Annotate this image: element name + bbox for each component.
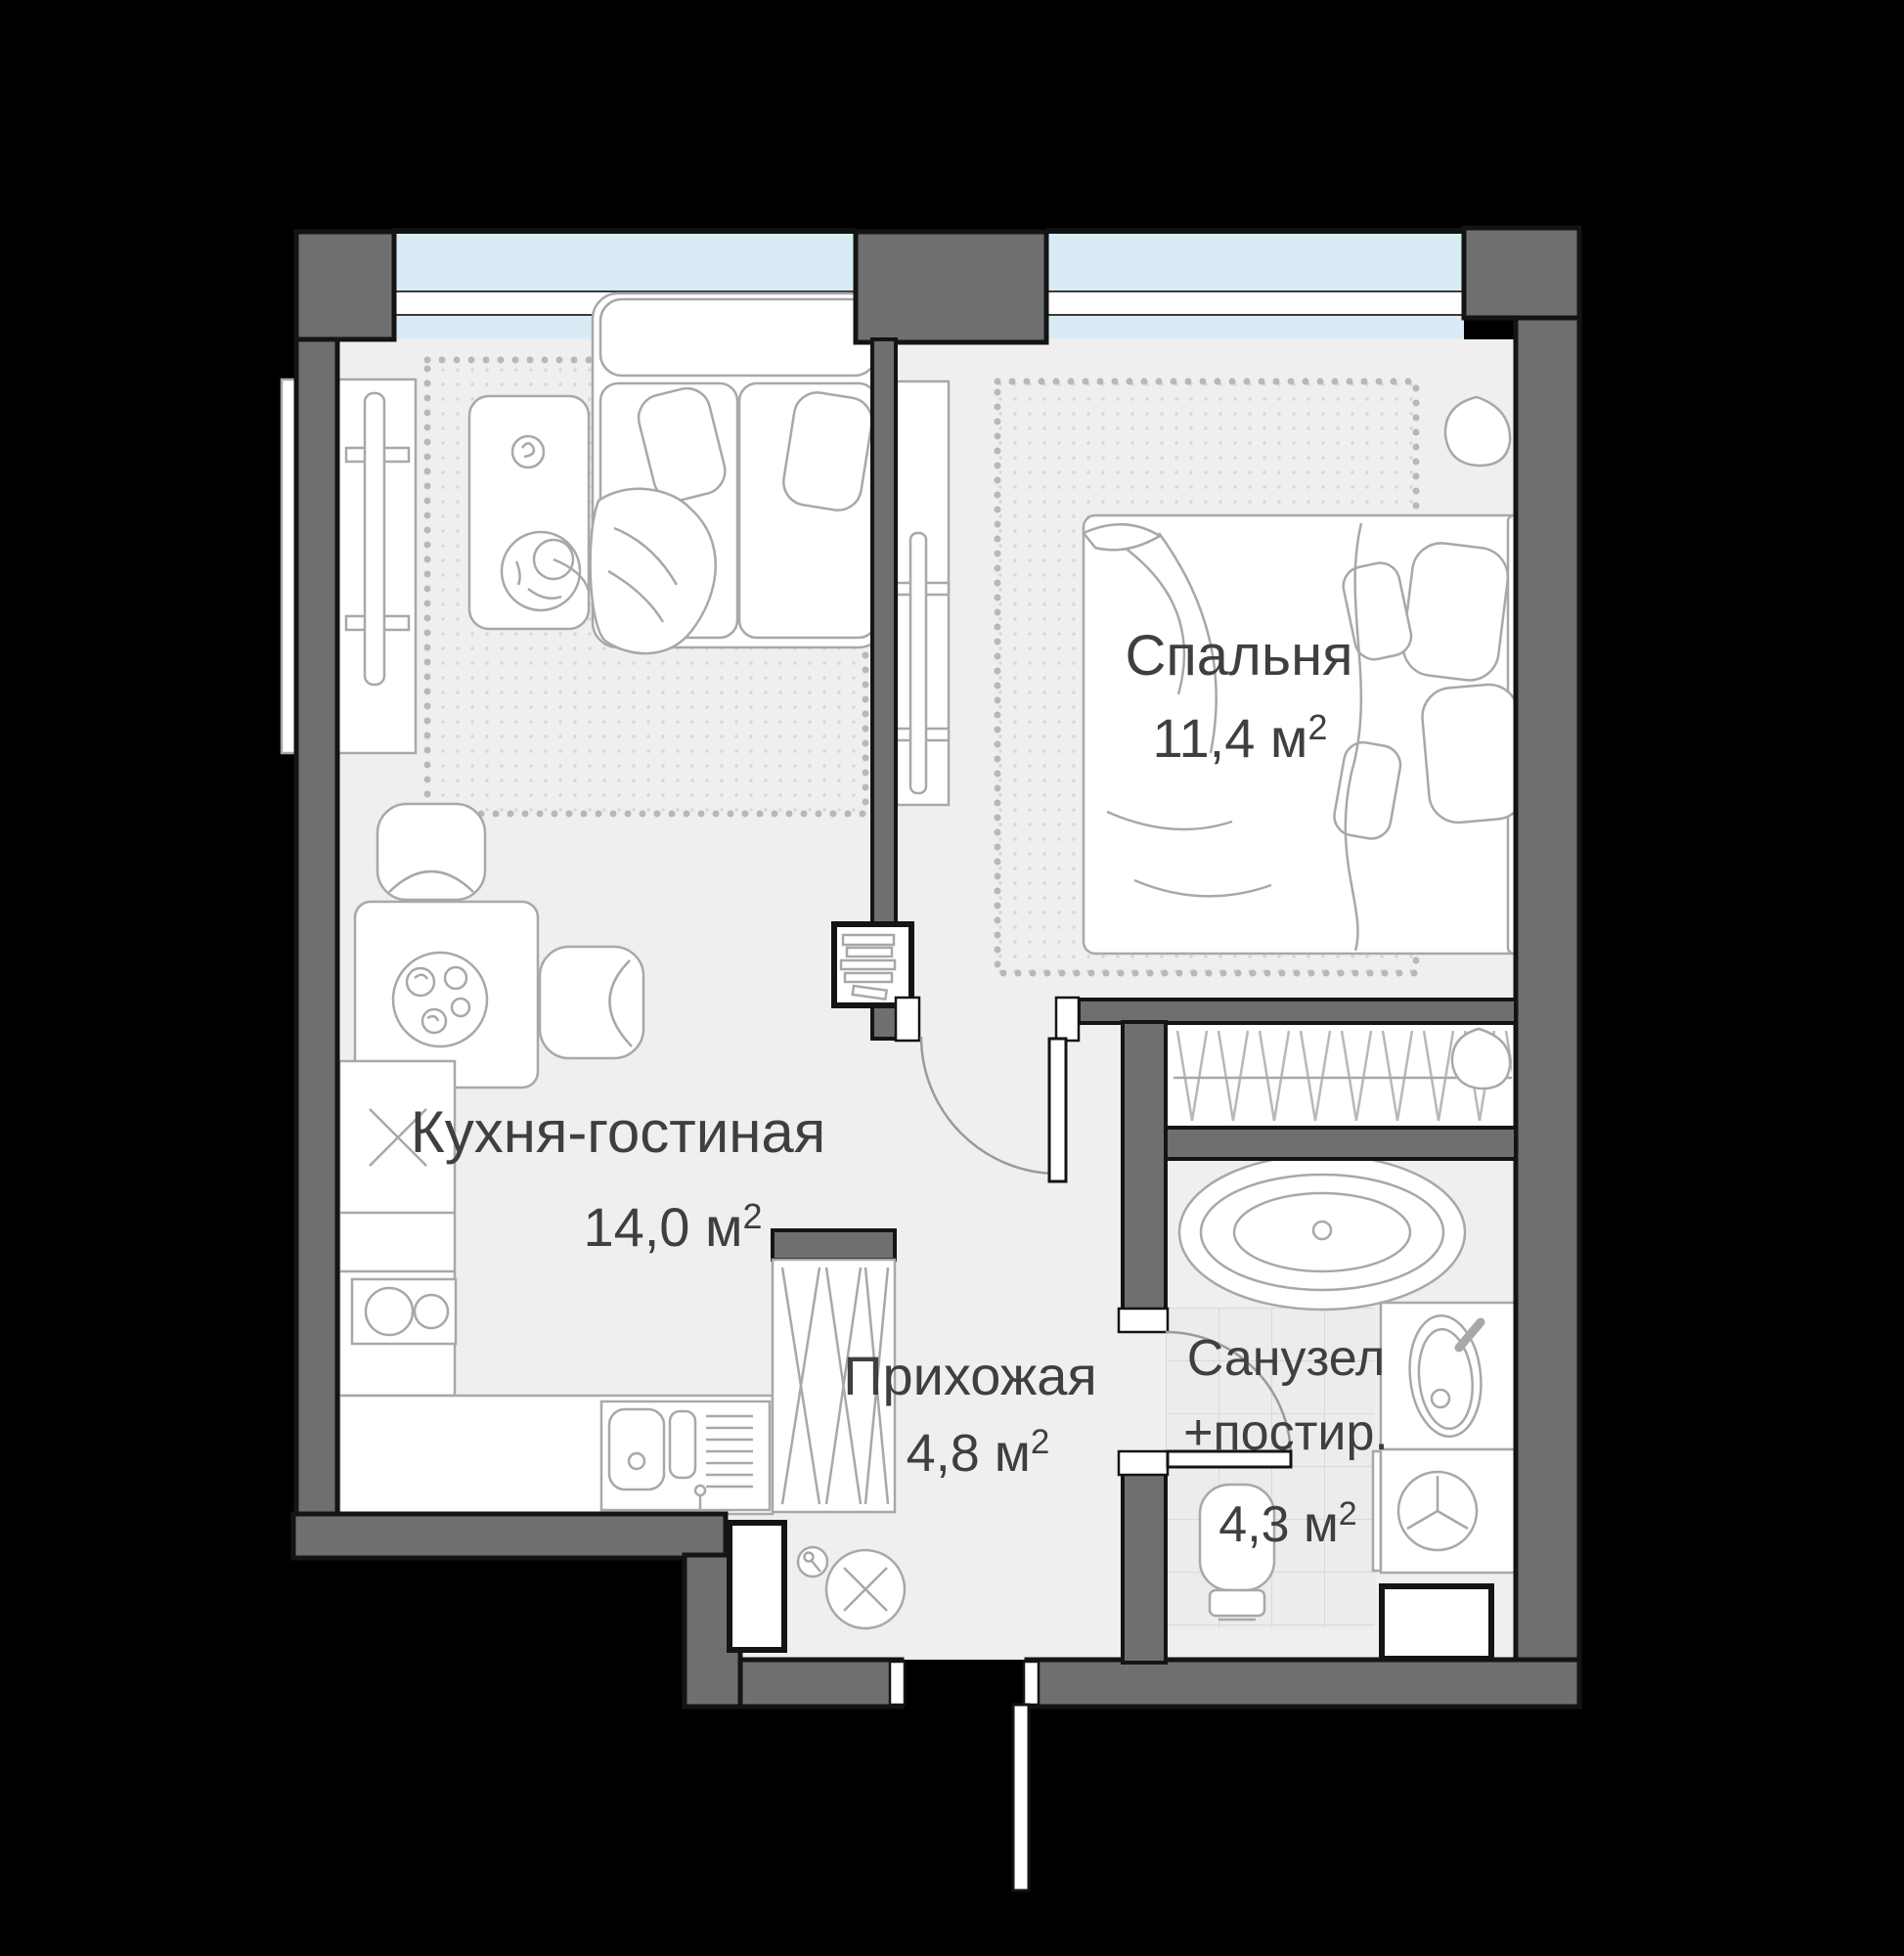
washing-machine	[1381, 1449, 1516, 1573]
hallway-area-sup: 2	[1031, 1423, 1049, 1461]
door-jamb	[1024, 1662, 1039, 1705]
wall-bedroom-bottom	[1079, 1000, 1516, 1023]
plate-food	[407, 968, 434, 996]
wall-right-exterior	[1516, 318, 1579, 1707]
hallway-label: Прихожая	[843, 1345, 1097, 1406]
sink-drainer	[706, 1416, 753, 1487]
closet	[1166, 1023, 1516, 1128]
facade-line	[1046, 228, 1464, 234]
bedroom-label: Спальня	[1125, 624, 1352, 688]
door-jamb	[896, 998, 919, 1041]
door-jamb	[1119, 1309, 1168, 1332]
wall-bathroom-left-lower	[1123, 1453, 1166, 1663]
wall-pillar-middle	[856, 232, 1046, 342]
door-jamb	[1119, 1451, 1168, 1475]
sofa	[591, 293, 884, 653]
wall-living-bedroom-divider	[872, 339, 896, 1002]
bedroom-area: 11,4 м2	[1153, 707, 1328, 769]
floor-hallway	[873, 1022, 1123, 1660]
wall-pillar-top-left	[296, 232, 394, 339]
bathroom-label: Санузел	[1187, 1330, 1386, 1387]
door-jamb	[1056, 998, 1079, 1041]
toilet-base	[1210, 1590, 1264, 1616]
wall-hallway-bottom	[740, 1660, 902, 1707]
bathroom-area-value: 4,3 м	[1218, 1496, 1338, 1553]
wall-closet-bottom	[1166, 1128, 1516, 1159]
sofa-pillow	[780, 389, 875, 513]
hallway-area: 4,8 м2	[907, 1423, 1050, 1483]
wall-bathroom-bottom	[1027, 1660, 1579, 1707]
wall-left-exterior	[296, 339, 337, 1558]
wall-bathroom-left-upper	[1123, 1022, 1166, 1330]
duct-niche	[730, 1523, 784, 1650]
hallway-area-value: 4,8 м	[907, 1424, 1031, 1483]
plate-food	[422, 1009, 446, 1033]
wardrobe-wall-stub	[773, 1230, 895, 1260]
bedroom-door-leaf	[1049, 1039, 1066, 1181]
book	[841, 960, 895, 969]
bookshelf	[834, 924, 911, 1005]
kitchen-living-area: 14,0 м2	[583, 1196, 762, 1258]
bedroom-tv-screen	[910, 533, 926, 793]
bathroom-area: 4,3 м2	[1218, 1495, 1356, 1553]
wall-kitchen-bottom	[293, 1514, 726, 1558]
bathroom-area-sup: 2	[1339, 1495, 1357, 1533]
bedroom-area-sup: 2	[1307, 707, 1327, 747]
floor-plan: Спальня 11,4 м2 Кухня-гостиная 14,0 м2 П…	[0, 0, 1904, 1956]
bathroom-label-line2: +постир.	[1183, 1404, 1389, 1461]
kitchen-living-label: Кухня-гостиная	[411, 1099, 825, 1165]
sink-bowl-small	[670, 1411, 695, 1478]
dining-chair	[377, 804, 485, 900]
coffee-table-decor	[512, 436, 544, 467]
hob	[352, 1279, 456, 1344]
book	[847, 948, 892, 956]
plate-food	[452, 999, 469, 1016]
kitchen-living-area-sup: 2	[743, 1196, 763, 1236]
wall-pillar-top-right	[1464, 228, 1579, 318]
bed-pillow	[1420, 682, 1528, 824]
bedroom-area-value: 11,4 м	[1153, 707, 1308, 769]
kitchen-living-area-value: 14,0 м	[583, 1196, 742, 1258]
bed-pillow	[1399, 540, 1511, 684]
bathtub	[1179, 1155, 1465, 1310]
bathroom-shaft	[1382, 1586, 1491, 1659]
sofa-back	[600, 299, 876, 376]
entrance-door-leaf	[1013, 1705, 1029, 1890]
floor-plan-canvas: Спальня 11,4 м2 Кухня-гостиная 14,0 м2 П…	[0, 0, 1904, 1956]
window-frame-bedroom	[1041, 291, 1472, 315]
bathroom-fixtures	[1166, 1155, 1516, 1628]
book	[845, 973, 892, 982]
window-bedroom	[1046, 234, 1464, 339]
book	[843, 935, 894, 945]
door-jamb	[890, 1662, 905, 1705]
tv-screen	[365, 393, 384, 685]
sink-bowl	[609, 1409, 664, 1489]
facade-line	[391, 228, 856, 234]
plate-food	[445, 967, 466, 989]
